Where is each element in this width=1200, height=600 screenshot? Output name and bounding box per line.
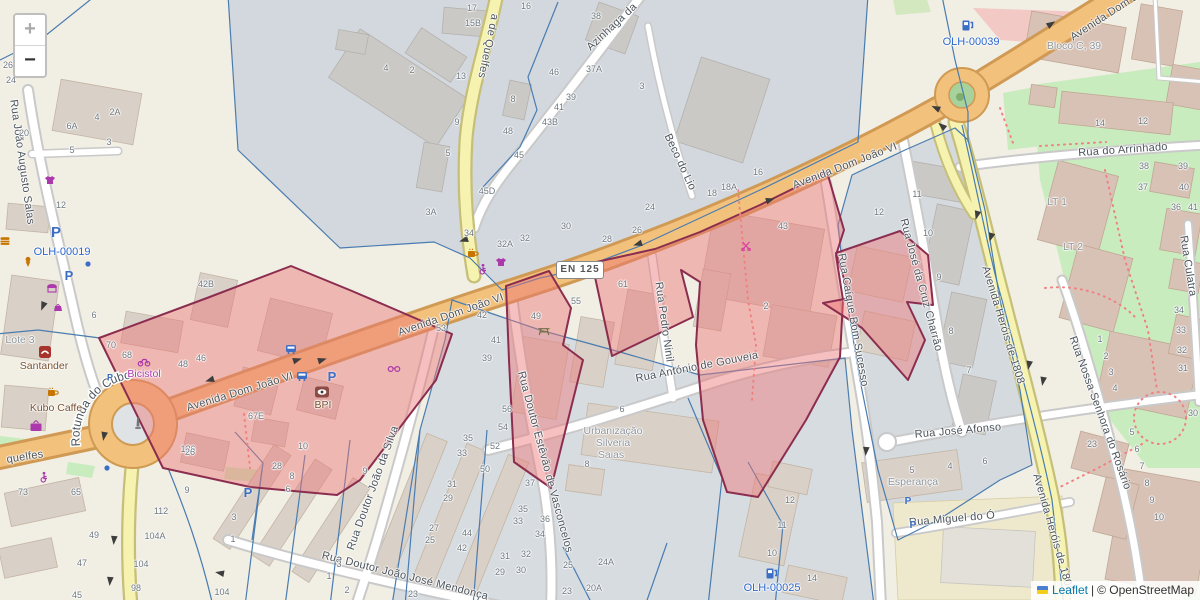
map-shape xyxy=(941,527,1036,588)
osm-copyright-link[interactable]: © OpenStreetMap xyxy=(1097,583,1194,597)
oneway-arrow-icon xyxy=(110,536,117,546)
road-ref-shield: EN 125 xyxy=(556,261,604,279)
map-shape xyxy=(28,90,110,420)
leaflet-link[interactable]: Leaflet xyxy=(1052,583,1088,597)
map-shape xyxy=(6,203,50,233)
roundabout-northeast xyxy=(935,68,989,122)
map-tiles: Rotunda do Cubo xyxy=(0,0,1200,600)
ukraine-flag-icon xyxy=(1037,586,1048,594)
map-shape xyxy=(1,385,48,431)
map-shape xyxy=(0,538,58,579)
map-shape xyxy=(168,468,213,600)
road-ref-text: EN 125 xyxy=(560,264,599,275)
zoom-out-button[interactable]: − xyxy=(15,46,45,76)
zoom-in-button[interactable]: + xyxy=(15,15,45,46)
map-shape xyxy=(956,93,964,101)
map-shape xyxy=(1029,84,1058,107)
map-shape xyxy=(128,466,132,600)
map-shape xyxy=(32,151,118,154)
map-shape xyxy=(442,7,486,37)
attribution-separator: | xyxy=(1091,583,1094,597)
map-shape xyxy=(52,79,142,144)
map-shape xyxy=(66,462,95,478)
map-shape xyxy=(893,0,931,15)
map-canvas[interactable]: Rotunda do Cubo Avenida Dom João VIAveni… xyxy=(0,0,1200,600)
map-shape xyxy=(1150,162,1195,198)
attribution-bar: Leaflet|© OpenStreetMap xyxy=(1031,581,1200,600)
oneway-arrow-icon xyxy=(1039,376,1047,386)
oneway-arrow-icon xyxy=(106,577,113,587)
map-shape xyxy=(4,477,85,526)
map-shape xyxy=(565,465,604,496)
mini-roundabout xyxy=(878,433,896,451)
oneway-arrow-icon xyxy=(215,569,225,577)
zoom-control: + − xyxy=(13,13,47,78)
map-shape xyxy=(1,275,60,361)
